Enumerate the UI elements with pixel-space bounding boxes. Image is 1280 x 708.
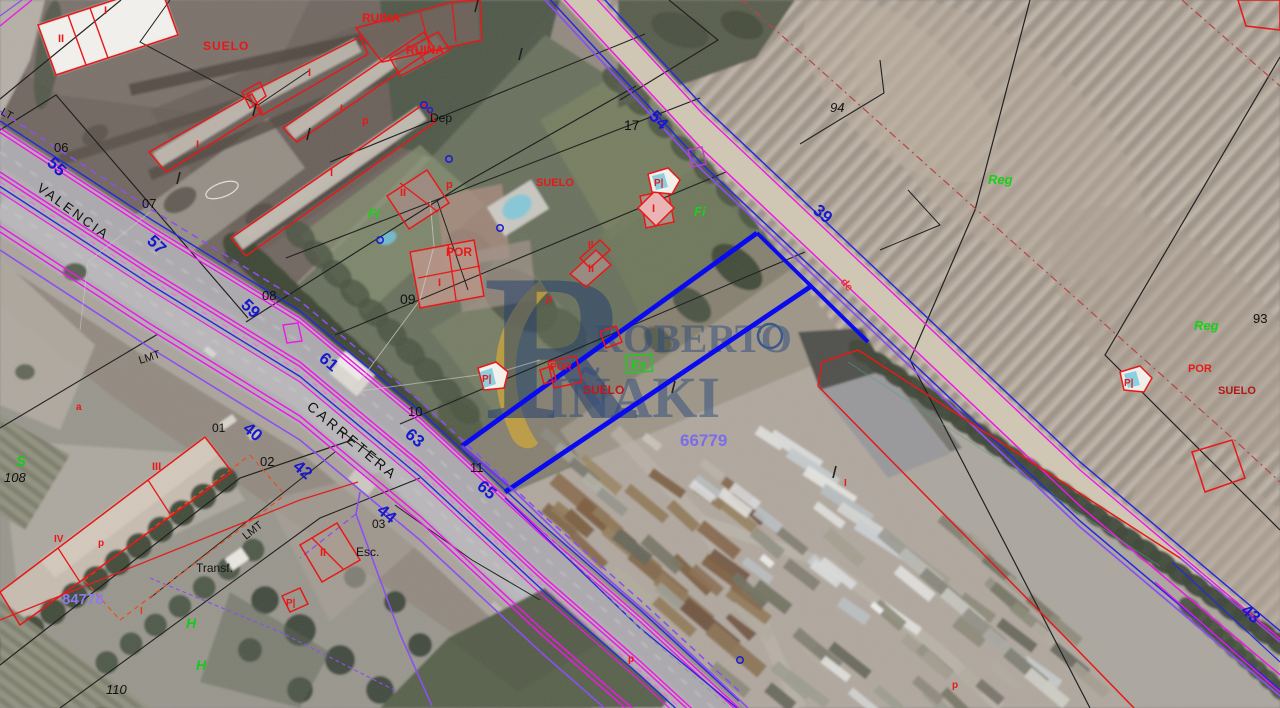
svg-text:POR: POR xyxy=(550,362,572,373)
svg-text:I: I xyxy=(308,67,311,79)
svg-text:II: II xyxy=(588,263,594,275)
svg-text:II: II xyxy=(400,187,406,199)
svg-text:Transf.: Transf. xyxy=(196,561,233,575)
svg-text:Fi: Fi xyxy=(694,204,706,219)
svg-text:H: H xyxy=(196,657,207,673)
svg-text:IÑAKI: IÑAKI xyxy=(546,365,720,430)
svg-text:SUELO: SUELO xyxy=(583,383,624,397)
svg-text:Dep: Dep xyxy=(430,111,452,125)
svg-text:02: 02 xyxy=(260,454,274,469)
svg-text:p: p xyxy=(362,115,369,127)
svg-text:III: III xyxy=(152,461,161,473)
svg-text:II: II xyxy=(588,240,594,251)
svg-text:I: I xyxy=(438,277,441,289)
svg-text:Reg: Reg xyxy=(1194,318,1219,333)
svg-text:RUINA: RUINA xyxy=(362,11,400,25)
svg-text:I: I xyxy=(844,478,847,489)
svg-text:P|: P| xyxy=(654,178,664,189)
svg-text:SUELO: SUELO xyxy=(203,39,249,53)
svg-text:P|: P| xyxy=(286,598,296,609)
svg-text:p: p xyxy=(446,179,453,191)
svg-text:POR: POR xyxy=(1188,363,1212,375)
svg-text:II: II xyxy=(320,547,326,559)
svg-text:POR: POR xyxy=(446,245,472,259)
svg-text:Es: Es xyxy=(631,357,647,372)
svg-text:93: 93 xyxy=(1253,311,1267,326)
svg-text:RUINA: RUINA xyxy=(406,43,444,57)
svg-text:I: I xyxy=(330,167,333,179)
svg-text:110: 110 xyxy=(106,682,127,697)
svg-text:I: I xyxy=(652,203,655,215)
svg-text:S: S xyxy=(16,453,26,470)
svg-text:08: 08 xyxy=(262,288,276,303)
svg-text:I: I xyxy=(140,606,143,617)
svg-text:I: I xyxy=(104,5,107,17)
svg-text:SUELO: SUELO xyxy=(1218,385,1256,397)
svg-text:10: 10 xyxy=(408,404,422,419)
svg-text:H: H xyxy=(186,615,197,631)
svg-text:108: 108 xyxy=(4,470,26,485)
svg-text:Reg: Reg xyxy=(988,172,1013,187)
svg-text:07: 07 xyxy=(142,196,156,211)
svg-text:p: p xyxy=(952,680,958,691)
svg-text:SUELO: SUELO xyxy=(536,177,574,189)
svg-text:I: I xyxy=(340,103,343,115)
svg-text:11: 11 xyxy=(470,460,484,475)
svg-text:p: p xyxy=(546,294,552,305)
svg-text:Esc.: Esc. xyxy=(356,545,379,559)
svg-text:84778: 84778 xyxy=(62,591,104,608)
svg-text:II: II xyxy=(58,33,64,45)
svg-text:a: a xyxy=(76,402,82,413)
svg-text:P|: P| xyxy=(482,374,492,385)
svg-text:17: 17 xyxy=(624,117,640,133)
svg-text:p: p xyxy=(628,654,634,665)
svg-text:Fi: Fi xyxy=(368,206,380,221)
svg-text:66779: 66779 xyxy=(680,431,727,450)
svg-text:01: 01 xyxy=(212,421,226,435)
svg-text:09: 09 xyxy=(400,291,416,307)
svg-text:94: 94 xyxy=(830,100,844,115)
svg-text:ROBERTO: ROBERTO xyxy=(594,316,792,361)
svg-text:IV: IV xyxy=(54,534,64,545)
svg-text:p: p xyxy=(98,538,104,549)
svg-text:I: I xyxy=(196,139,199,151)
svg-text:P|: P| xyxy=(1124,378,1134,389)
